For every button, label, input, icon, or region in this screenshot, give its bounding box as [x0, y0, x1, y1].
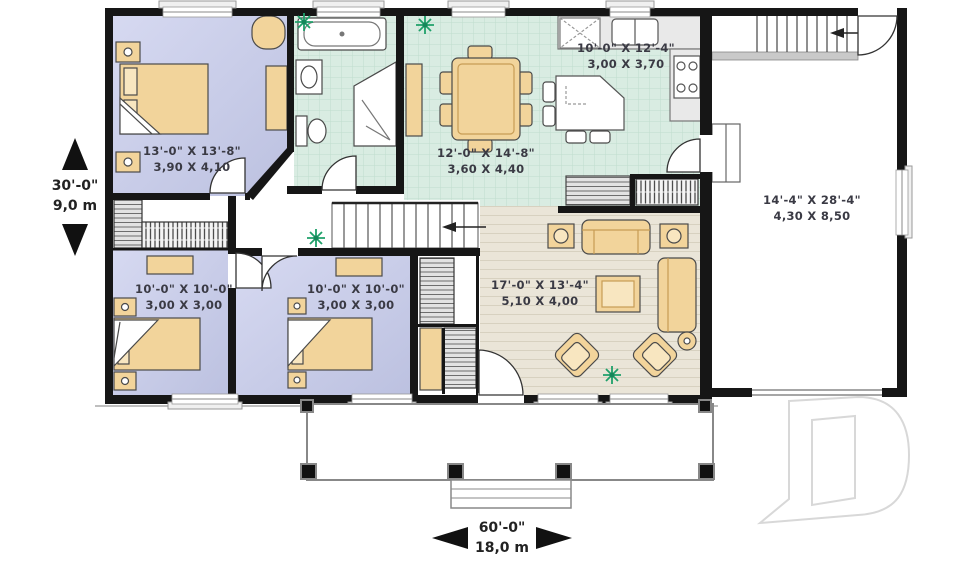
stove [674, 56, 700, 98]
room-dim-metric: 4,30 X 8,50 [763, 208, 861, 224]
room-dim-imperial: 10'-0" X 10'-0" [307, 281, 405, 297]
master-chair [252, 16, 285, 49]
bathroom-sink [296, 60, 322, 94]
room-dim-imperial: 10'-0" X 10'-0" [135, 281, 233, 297]
room-label-master-bedroom: 13'-0" X 13'-8" 3,90 X 4,10 [143, 143, 241, 175]
pantry-closet [636, 179, 698, 205]
width-dimension: 60'-0" 18,0 m [432, 518, 572, 558]
garage-back-door [858, 7, 897, 55]
room-dim-imperial: 13'-0" X 13'-8" [143, 143, 241, 159]
room-label-living: 17'-0" X 13'-4" 5,10 X 4,00 [491, 277, 589, 309]
room-dim-metric: 5,10 X 4,00 [491, 293, 589, 309]
window [606, 1, 654, 17]
width-imperial: 60'-0" [475, 518, 529, 538]
watermark-d-logo [760, 397, 909, 523]
room-label-garage: 14'-4" X 28'-4" 4,30 X 8,50 [763, 192, 861, 224]
room-label-kitchen: 10'-0" X 12'-4" 3,00 X 3,70 [577, 40, 675, 72]
garage-step [712, 124, 740, 182]
room-dim-imperial: 17'-0" X 13'-4" [491, 277, 589, 293]
room-dim-metric: 3,00 X 3,00 [307, 297, 405, 313]
arrow-left-icon [432, 527, 468, 549]
depth-imperial: 30'-0" [30, 176, 120, 196]
floor-plan-canvas: 13'-0" X 13'-8" 3,90 X 4,10 10'-0" X 12'… [0, 0, 960, 569]
window [313, 1, 384, 17]
room-label-bedroom2: 10'-0" X 10'-0" 3,00 X 3,00 [135, 281, 233, 313]
room-label-bedroom3: 10'-0" X 10'-0" 3,00 X 3,00 [307, 281, 405, 313]
loveseat [658, 258, 696, 332]
sofa [582, 220, 650, 254]
room-dim-metric: 3,00 X 3,70 [577, 56, 675, 72]
arrow-down-icon [62, 224, 88, 256]
window [159, 1, 236, 17]
room-dim-metric: 3,90 X 4,10 [143, 159, 241, 175]
room-dim-metric: 3,00 X 3,00 [135, 297, 233, 313]
depth-metric: 9,0 m [30, 196, 120, 216]
porch [301, 400, 714, 508]
dining-table-set [440, 46, 532, 152]
room-dim-metric: 3,60 X 4,40 [437, 161, 535, 177]
main-staircase [332, 203, 486, 248]
arrow-right-icon [536, 527, 572, 549]
room-dim-imperial: 12'-0" X 14'-8" [437, 145, 535, 161]
room-label-dining: 12'-0" X 14'-8" 3,60 X 4,40 [437, 145, 535, 177]
width-metric: 18,0 m [475, 538, 529, 558]
buffet-desk [566, 176, 630, 205]
porch-steps [451, 480, 571, 508]
dining-sideboard [406, 64, 422, 136]
room-dim-imperial: 10'-0" X 12'-4" [577, 40, 675, 56]
arrow-up-icon [62, 138, 88, 170]
garage-staircase [712, 16, 868, 60]
room-dim-imperial: 14'-4" X 28'-4" [763, 192, 861, 208]
window [448, 1, 509, 17]
window [896, 166, 912, 238]
master-dresser [266, 66, 287, 130]
depth-dimension: 30'-0" 9,0 m [30, 138, 120, 256]
window [168, 394, 242, 409]
